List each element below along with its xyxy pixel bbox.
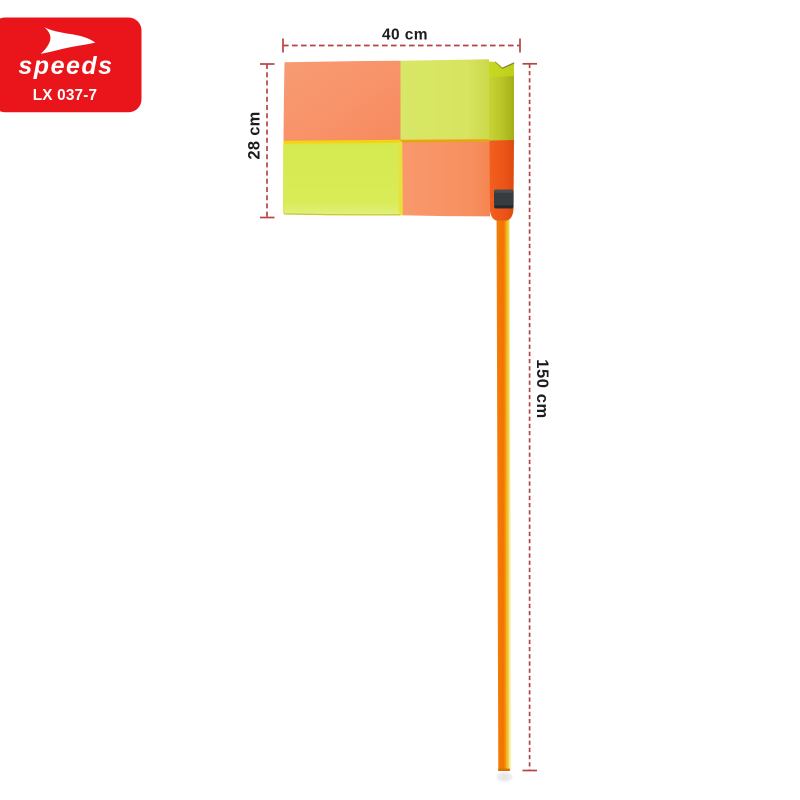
svg-text:LX 037-7: LX 037-7 xyxy=(33,87,98,104)
svg-text:28 cm: 28 cm xyxy=(246,111,264,159)
svg-text:speeds: speeds xyxy=(18,52,113,80)
svg-text:40 cm: 40 cm xyxy=(382,27,428,44)
svg-text:150 cm: 150 cm xyxy=(533,359,551,419)
